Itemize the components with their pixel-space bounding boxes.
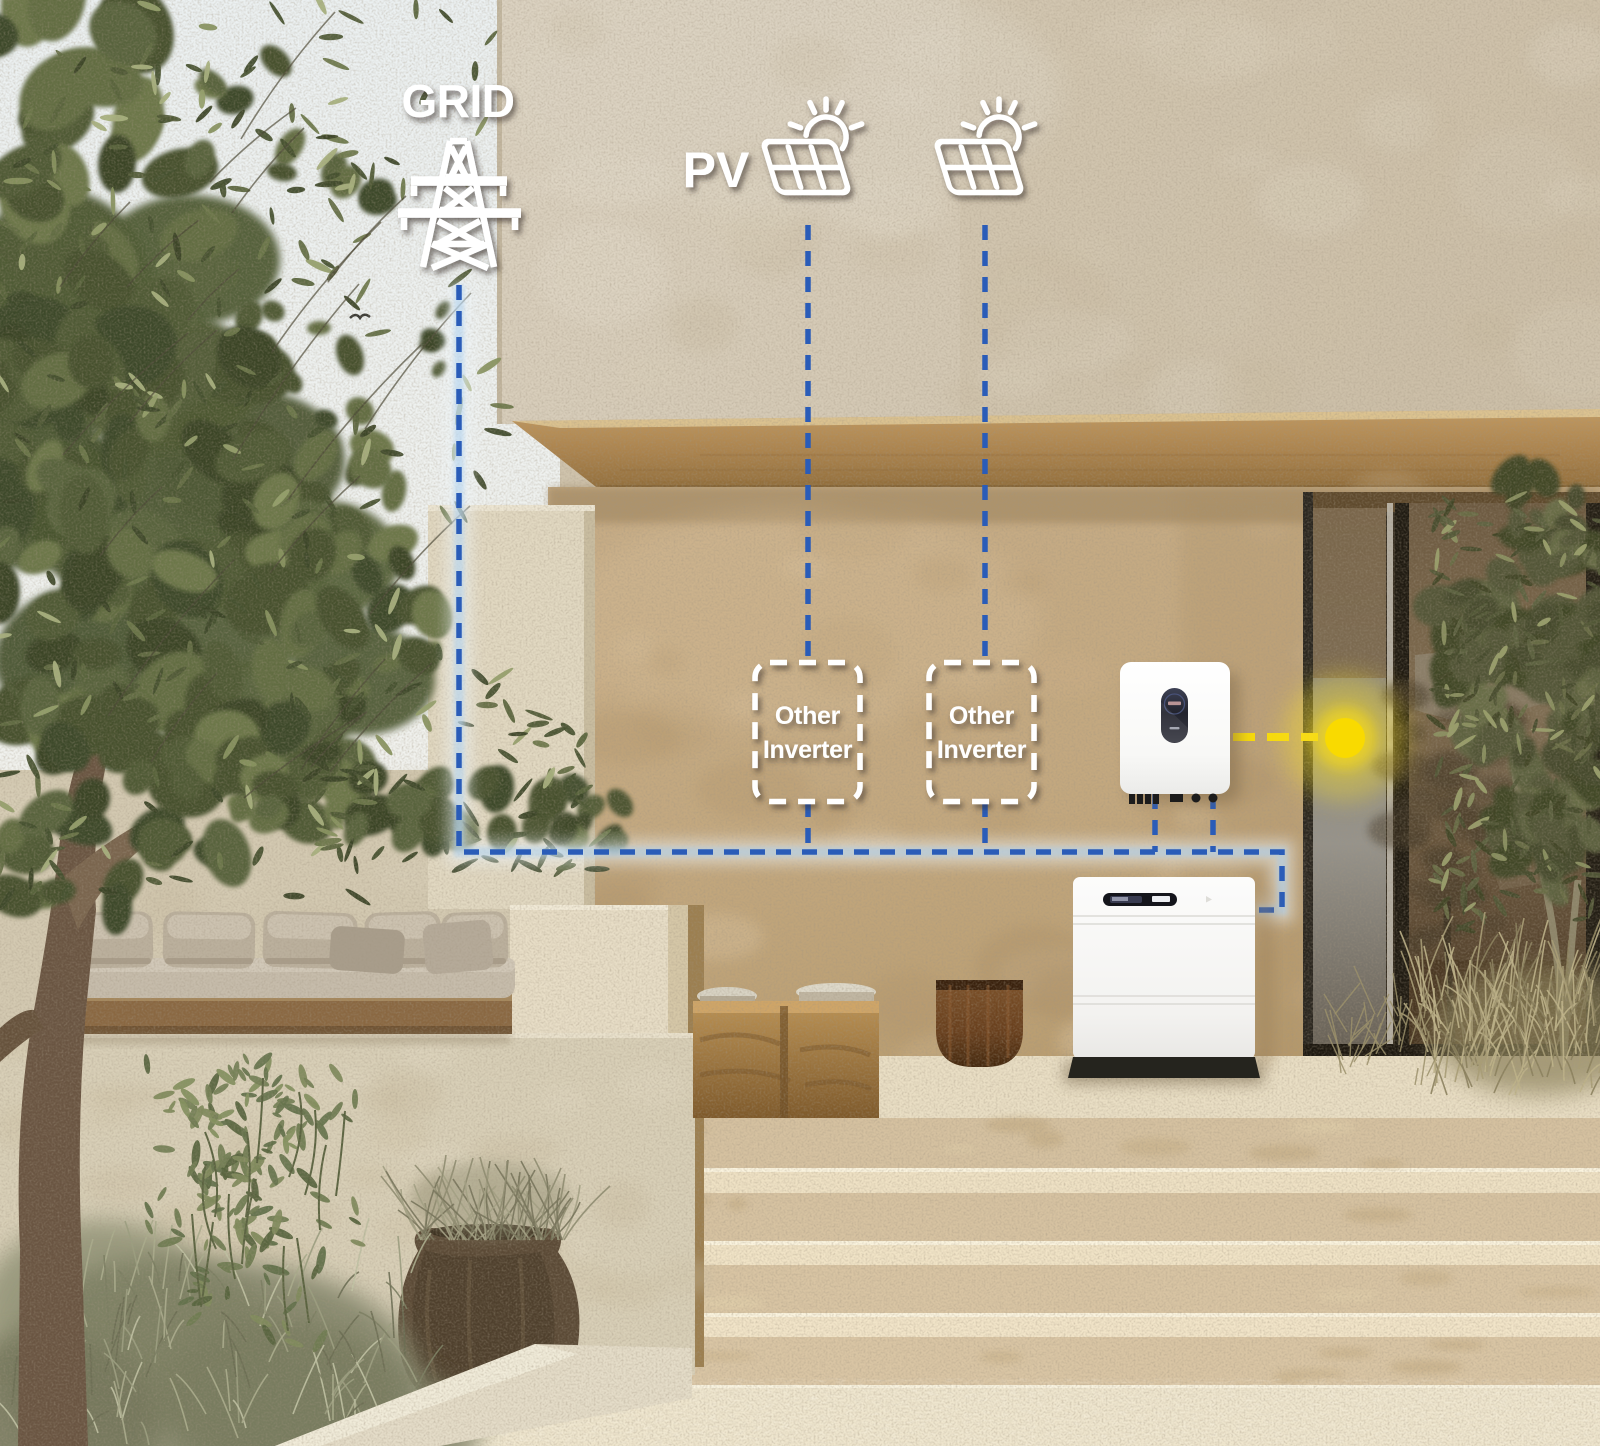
svg-text:Other: Other (775, 702, 841, 730)
svg-text:Inverter: Inverter (937, 736, 1027, 764)
svg-text:PV: PV (683, 142, 750, 198)
svg-text:Inverter: Inverter (763, 736, 853, 764)
svg-text:Other: Other (949, 702, 1015, 730)
svg-text:GRID: GRID (402, 75, 515, 127)
